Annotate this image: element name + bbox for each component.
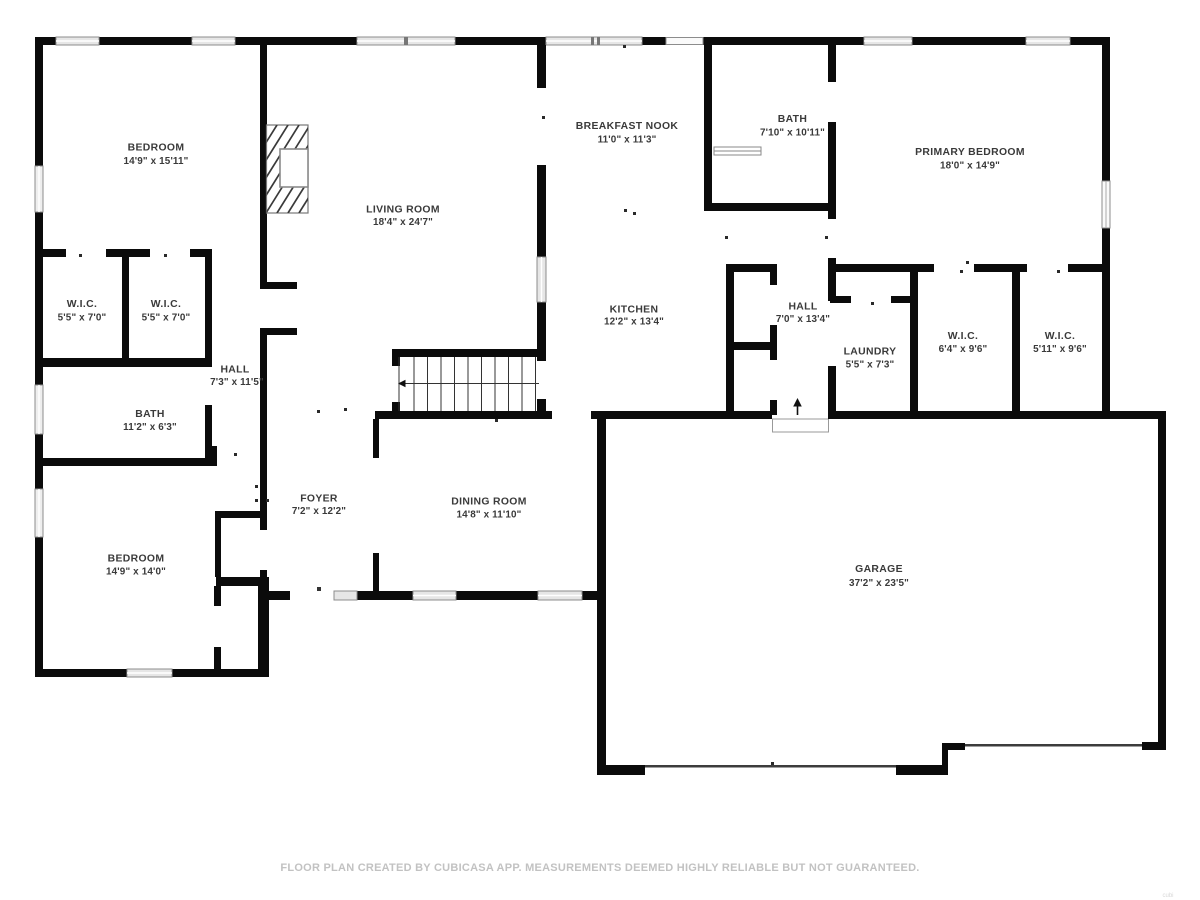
svg-text:11'0" x 11'3": 11'0" x 11'3" <box>598 135 657 146</box>
svg-text:BATH: BATH <box>135 409 165 420</box>
svg-text:W.I.C.: W.I.C. <box>1045 331 1075 342</box>
svg-text:FOYER: FOYER <box>300 494 338 505</box>
svg-text:GARAGE: GARAGE <box>855 564 903 575</box>
svg-text:PRIMARY BEDROOM: PRIMARY BEDROOM <box>915 147 1025 158</box>
svg-text:FLOOR PLAN CREATED BY CUBICASA: FLOOR PLAN CREATED BY CUBICASA APP. MEAS… <box>280 862 919 874</box>
svg-text:7'0" x 13'4": 7'0" x 13'4" <box>776 314 830 325</box>
svg-text:12'2" x 13'4": 12'2" x 13'4" <box>604 317 664 328</box>
svg-text:LAUNDRY: LAUNDRY <box>844 347 897 358</box>
svg-text:14'9" x 15'11": 14'9" x 15'11" <box>123 156 188 167</box>
svg-text:18'4" x 24'7": 18'4" x 24'7" <box>373 217 433 228</box>
svg-text:DINING ROOM: DINING ROOM <box>451 497 526 508</box>
svg-text:7'2" x 12'2": 7'2" x 12'2" <box>292 506 346 517</box>
svg-text:37'2" x 23'5": 37'2" x 23'5" <box>849 578 909 589</box>
svg-text:18'0" x 14'9": 18'0" x 14'9" <box>940 161 1000 172</box>
svg-text:7'10" x 10'11": 7'10" x 10'11" <box>760 128 825 139</box>
svg-text:5'5" x 7'3": 5'5" x 7'3" <box>846 360 895 371</box>
svg-text:6'4" x 9'6": 6'4" x 9'6" <box>939 344 988 355</box>
svg-text:cubi: cubi <box>1162 893 1173 899</box>
svg-text:5'5" x 7'0": 5'5" x 7'0" <box>142 313 191 324</box>
svg-text:W.I.C.: W.I.C. <box>151 299 181 310</box>
svg-text:5'11" x 9'6": 5'11" x 9'6" <box>1033 344 1087 355</box>
svg-text:11'2" x 6'3": 11'2" x 6'3" <box>123 422 177 433</box>
svg-text:LIVING ROOM: LIVING ROOM <box>366 205 440 216</box>
svg-text:KITCHEN: KITCHEN <box>610 305 659 316</box>
svg-text:14'8" x 11'10": 14'8" x 11'10" <box>456 510 521 521</box>
svg-text:W.I.C.: W.I.C. <box>948 331 978 342</box>
svg-text:14'9" x 14'0": 14'9" x 14'0" <box>106 567 166 578</box>
svg-text:BEDROOM: BEDROOM <box>128 143 185 154</box>
svg-text:HALL: HALL <box>788 302 817 313</box>
svg-text:HALL: HALL <box>220 365 249 376</box>
svg-text:BEDROOM: BEDROOM <box>108 554 165 565</box>
svg-text:BATH: BATH <box>778 114 808 125</box>
svg-text:7'3" x 11'5": 7'3" x 11'5" <box>210 377 264 388</box>
svg-text:5'5" x 7'0": 5'5" x 7'0" <box>58 313 107 324</box>
svg-text:W.I.C.: W.I.C. <box>67 299 97 310</box>
svg-text:BREAKFAST NOOK: BREAKFAST NOOK <box>576 121 679 132</box>
